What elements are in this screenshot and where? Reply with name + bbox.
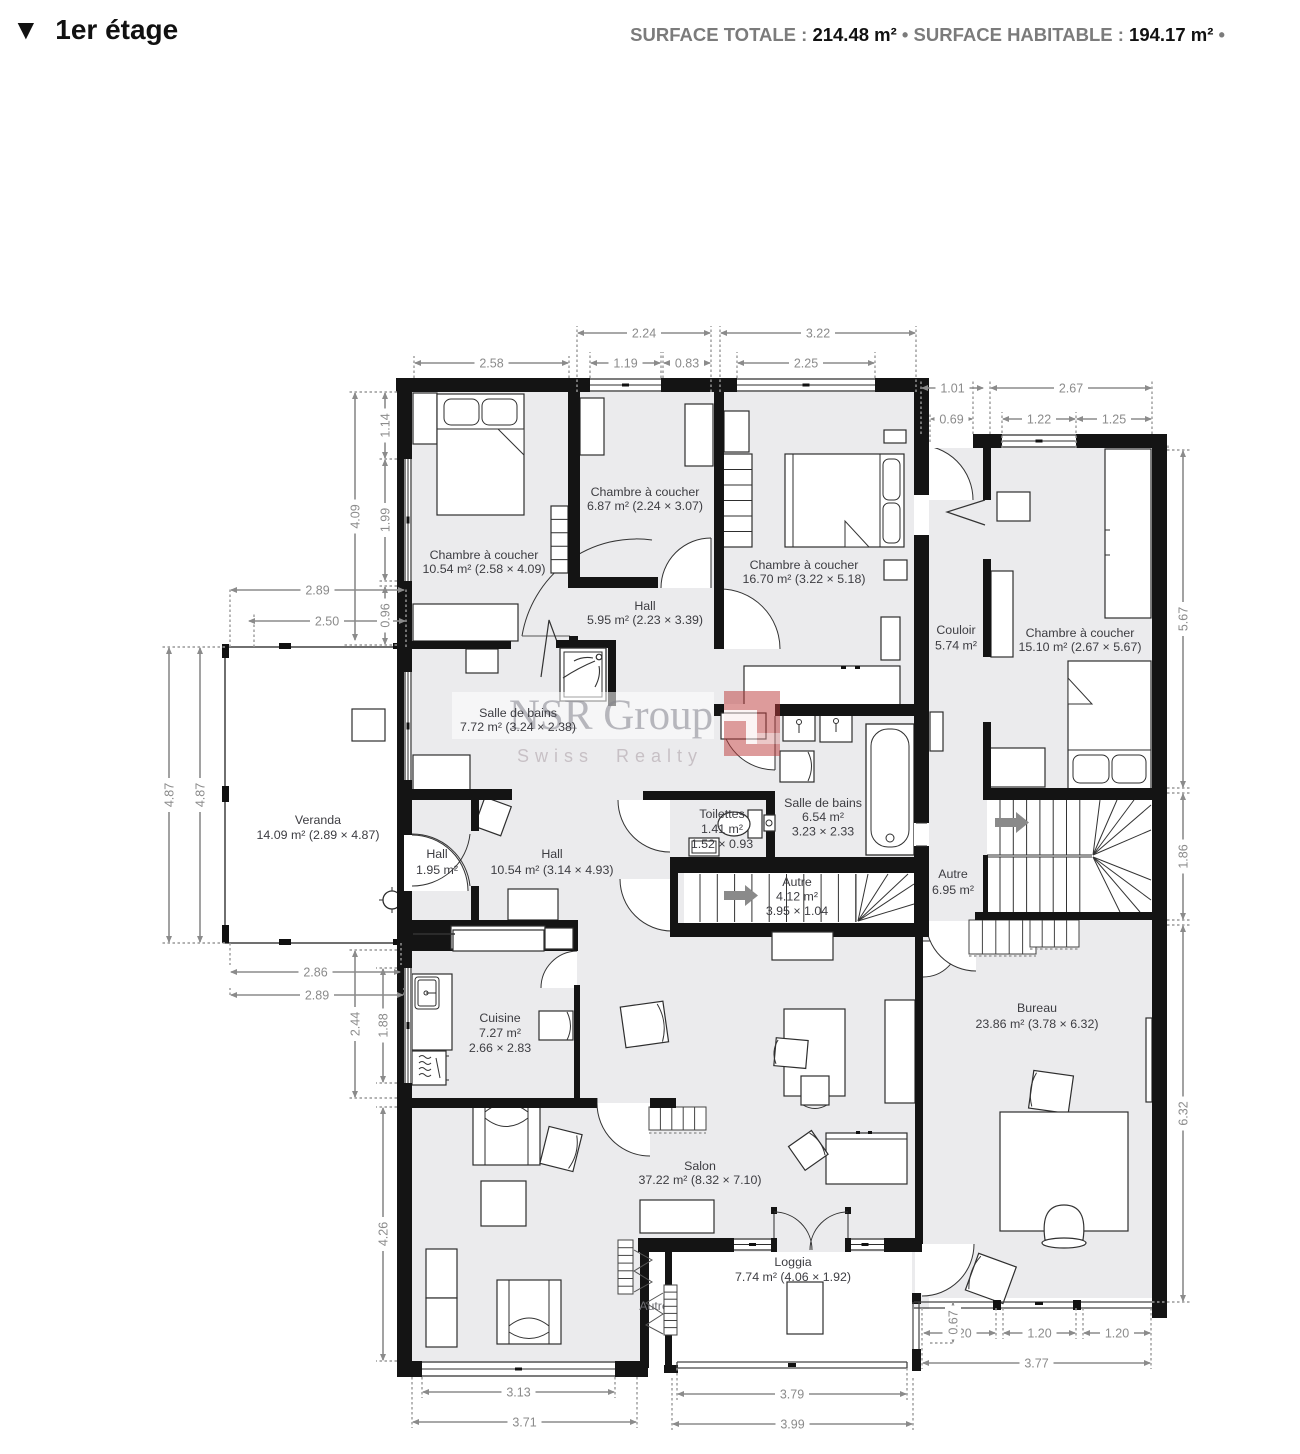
svg-text:2.86: 2.86 bbox=[303, 966, 327, 980]
svg-text:2.89: 2.89 bbox=[305, 584, 329, 598]
svg-text:2.25: 2.25 bbox=[794, 357, 818, 371]
svg-text:1.52 × 0.93: 1.52 × 0.93 bbox=[691, 837, 753, 851]
svg-text:Couloir: Couloir bbox=[936, 623, 975, 637]
svg-text:3.99: 3.99 bbox=[780, 1418, 804, 1432]
svg-text:Hall: Hall bbox=[541, 847, 562, 861]
svg-text:Loggia: Loggia bbox=[774, 1255, 811, 1269]
svg-text:0.67: 0.67 bbox=[947, 1310, 961, 1334]
svg-text:3.22: 3.22 bbox=[806, 327, 830, 341]
svg-text:0.96: 0.96 bbox=[379, 603, 393, 627]
svg-text:10.54 m² (3.14 × 4.93): 10.54 m² (3.14 × 4.93) bbox=[491, 863, 614, 877]
svg-text:7.74 m² (4.06 × 1.92): 7.74 m² (4.06 × 1.92) bbox=[735, 1270, 851, 1284]
svg-text:16.70 m² (3.22 × 5.18): 16.70 m² (3.22 × 5.18) bbox=[743, 572, 866, 586]
svg-text:Toilettes: Toilettes bbox=[699, 807, 744, 821]
svg-text:1.20: 1.20 bbox=[1027, 1327, 1051, 1341]
svg-text:3.95 × 1.04: 3.95 × 1.04 bbox=[766, 904, 828, 918]
svg-text:Chambre à coucher: Chambre à coucher bbox=[1026, 626, 1135, 640]
svg-text:5.95 m² (2.23 × 3.39): 5.95 m² (2.23 × 3.39) bbox=[587, 613, 703, 627]
svg-text:1.99: 1.99 bbox=[379, 508, 393, 532]
svg-text:Salle de bains: Salle de bains bbox=[784, 796, 862, 810]
svg-text:2.67: 2.67 bbox=[1059, 382, 1083, 396]
svg-text:Swiss Realty: Swiss Realty bbox=[517, 746, 703, 766]
svg-text:Veranda: Veranda bbox=[295, 813, 341, 827]
svg-text:2.58: 2.58 bbox=[479, 357, 503, 371]
svg-text:7.72 m² (3.24 × 2.38): 7.72 m² (3.24 × 2.38) bbox=[460, 720, 576, 734]
svg-text:10.54 m² (2.58 × 4.09): 10.54 m² (2.58 × 4.09) bbox=[423, 562, 546, 576]
svg-text:0.69: 0.69 bbox=[939, 413, 963, 427]
svg-text:Hall: Hall bbox=[426, 847, 447, 861]
svg-text:Salle de bains: Salle de bains bbox=[479, 706, 557, 720]
svg-text:3.77: 3.77 bbox=[1024, 1357, 1048, 1371]
svg-text:1.22: 1.22 bbox=[1027, 413, 1051, 427]
svg-text:14.09 m² (2.89 × 4.87): 14.09 m² (2.89 × 4.87) bbox=[257, 828, 380, 842]
svg-text:23.86 m² (3.78 × 6.32): 23.86 m² (3.78 × 6.32) bbox=[976, 1017, 1099, 1031]
svg-text:2.44: 2.44 bbox=[349, 1012, 363, 1036]
svg-text:4.26: 4.26 bbox=[377, 1222, 391, 1246]
svg-text:Chambre à coucher: Chambre à coucher bbox=[430, 548, 539, 562]
svg-text:4.09: 4.09 bbox=[349, 504, 363, 528]
svg-text:5.67: 5.67 bbox=[1177, 607, 1191, 631]
svg-text:1.20: 1.20 bbox=[1105, 1327, 1129, 1341]
svg-text:7.27 m²: 7.27 m² bbox=[479, 1026, 521, 1040]
svg-text:2.24: 2.24 bbox=[632, 327, 656, 341]
svg-text:1.41 m²: 1.41 m² bbox=[701, 822, 743, 836]
svg-text:1.01: 1.01 bbox=[940, 382, 964, 396]
svg-text:2.66 × 2.83: 2.66 × 2.83 bbox=[469, 1041, 531, 1055]
svg-text:5.74 m²: 5.74 m² bbox=[935, 639, 977, 653]
svg-text:6.87 m² (2.24 × 3.07): 6.87 m² (2.24 × 3.07) bbox=[587, 499, 703, 513]
svg-text:2.50: 2.50 bbox=[315, 615, 339, 629]
svg-text:Hall: Hall bbox=[634, 599, 655, 613]
svg-text:15.10 m² (2.67 × 5.67): 15.10 m² (2.67 × 5.67) bbox=[1019, 640, 1142, 654]
svg-text:3.71: 3.71 bbox=[512, 1416, 536, 1430]
svg-text:6.54 m²: 6.54 m² bbox=[802, 810, 844, 824]
svg-text:Autre: Autre bbox=[938, 867, 968, 881]
svg-text:1.25: 1.25 bbox=[1102, 413, 1126, 427]
svg-text:1.88: 1.88 bbox=[377, 1013, 391, 1037]
svg-text:Cuisine: Cuisine bbox=[479, 1011, 520, 1025]
svg-text:Salon: Salon bbox=[684, 1159, 716, 1173]
svg-text:3.23 × 2.33: 3.23 × 2.33 bbox=[792, 824, 854, 838]
svg-text:0.83: 0.83 bbox=[675, 357, 699, 371]
svg-text:1.14: 1.14 bbox=[379, 413, 393, 437]
svg-text:Chambre à coucher: Chambre à coucher bbox=[591, 485, 700, 499]
svg-text:4.12 m²: 4.12 m² bbox=[776, 890, 818, 904]
svg-text:1.19: 1.19 bbox=[613, 357, 637, 371]
svg-text:2.89: 2.89 bbox=[305, 989, 329, 1003]
svg-text:1.86: 1.86 bbox=[1177, 844, 1191, 868]
svg-text:Autre: Autre bbox=[782, 875, 812, 889]
svg-text:37.22 m² (8.32 × 7.10): 37.22 m² (8.32 × 7.10) bbox=[639, 1173, 762, 1187]
svg-text:4.87: 4.87 bbox=[163, 783, 177, 807]
svg-text:6.95 m²: 6.95 m² bbox=[932, 883, 974, 897]
svg-text:3.79: 3.79 bbox=[780, 1388, 804, 1402]
svg-text:1.95 m²: 1.95 m² bbox=[416, 863, 458, 877]
svg-text:3.13: 3.13 bbox=[506, 1386, 530, 1400]
svg-text:Bureau: Bureau bbox=[1017, 1001, 1057, 1015]
svg-text:6.32: 6.32 bbox=[1177, 1101, 1191, 1125]
svg-text:Chambre à coucher: Chambre à coucher bbox=[750, 558, 859, 572]
svg-text:4.87: 4.87 bbox=[194, 783, 208, 807]
